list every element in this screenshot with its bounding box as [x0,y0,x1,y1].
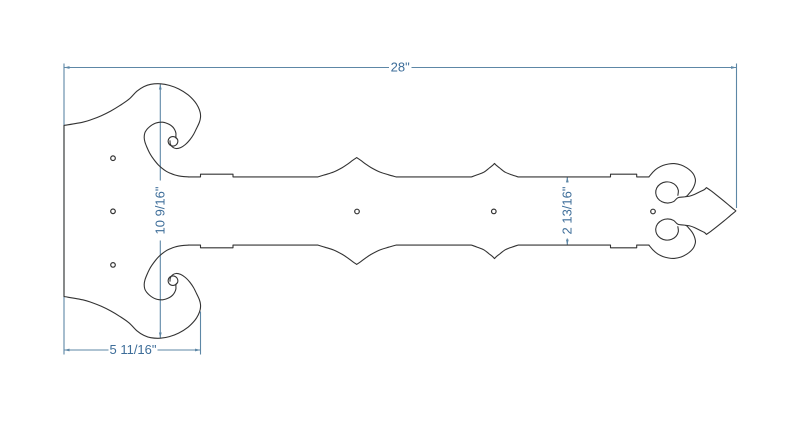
svg-text:10 9/16": 10 9/16" [152,186,167,234]
svg-text:2 13/16": 2 13/16" [559,186,574,234]
svg-text:28": 28" [391,59,410,74]
svg-text:5 11/16": 5 11/16" [109,342,156,357]
